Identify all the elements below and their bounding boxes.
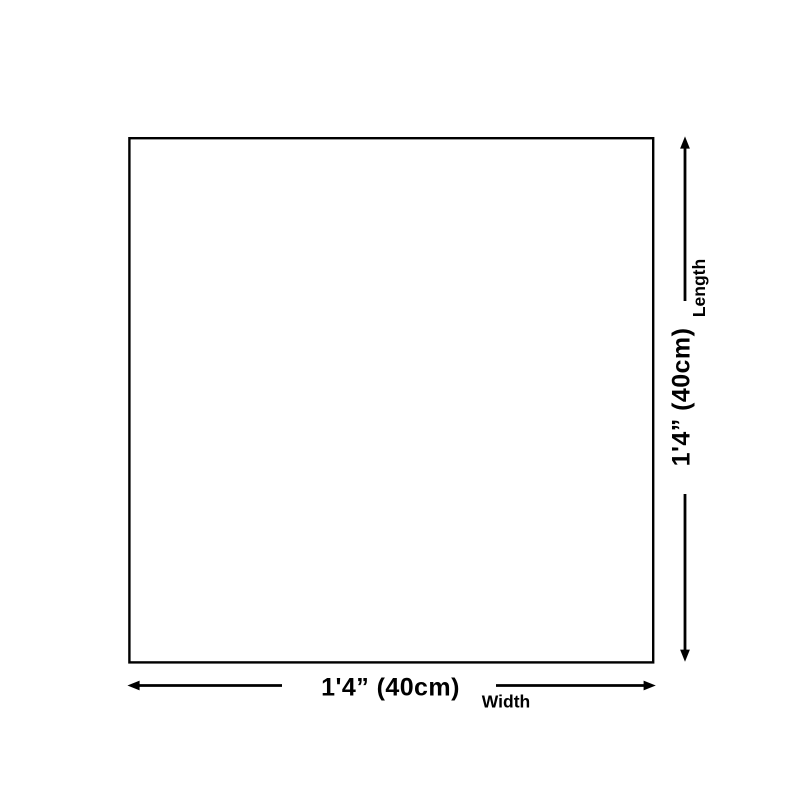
svg-text:Length: Length [689,259,709,317]
svg-text:1'4” (40cm): 1'4” (40cm) [321,674,460,702]
svg-text:Width: Width [482,692,530,712]
svg-text:1'4” (40cm): 1'4” (40cm) [668,328,696,467]
